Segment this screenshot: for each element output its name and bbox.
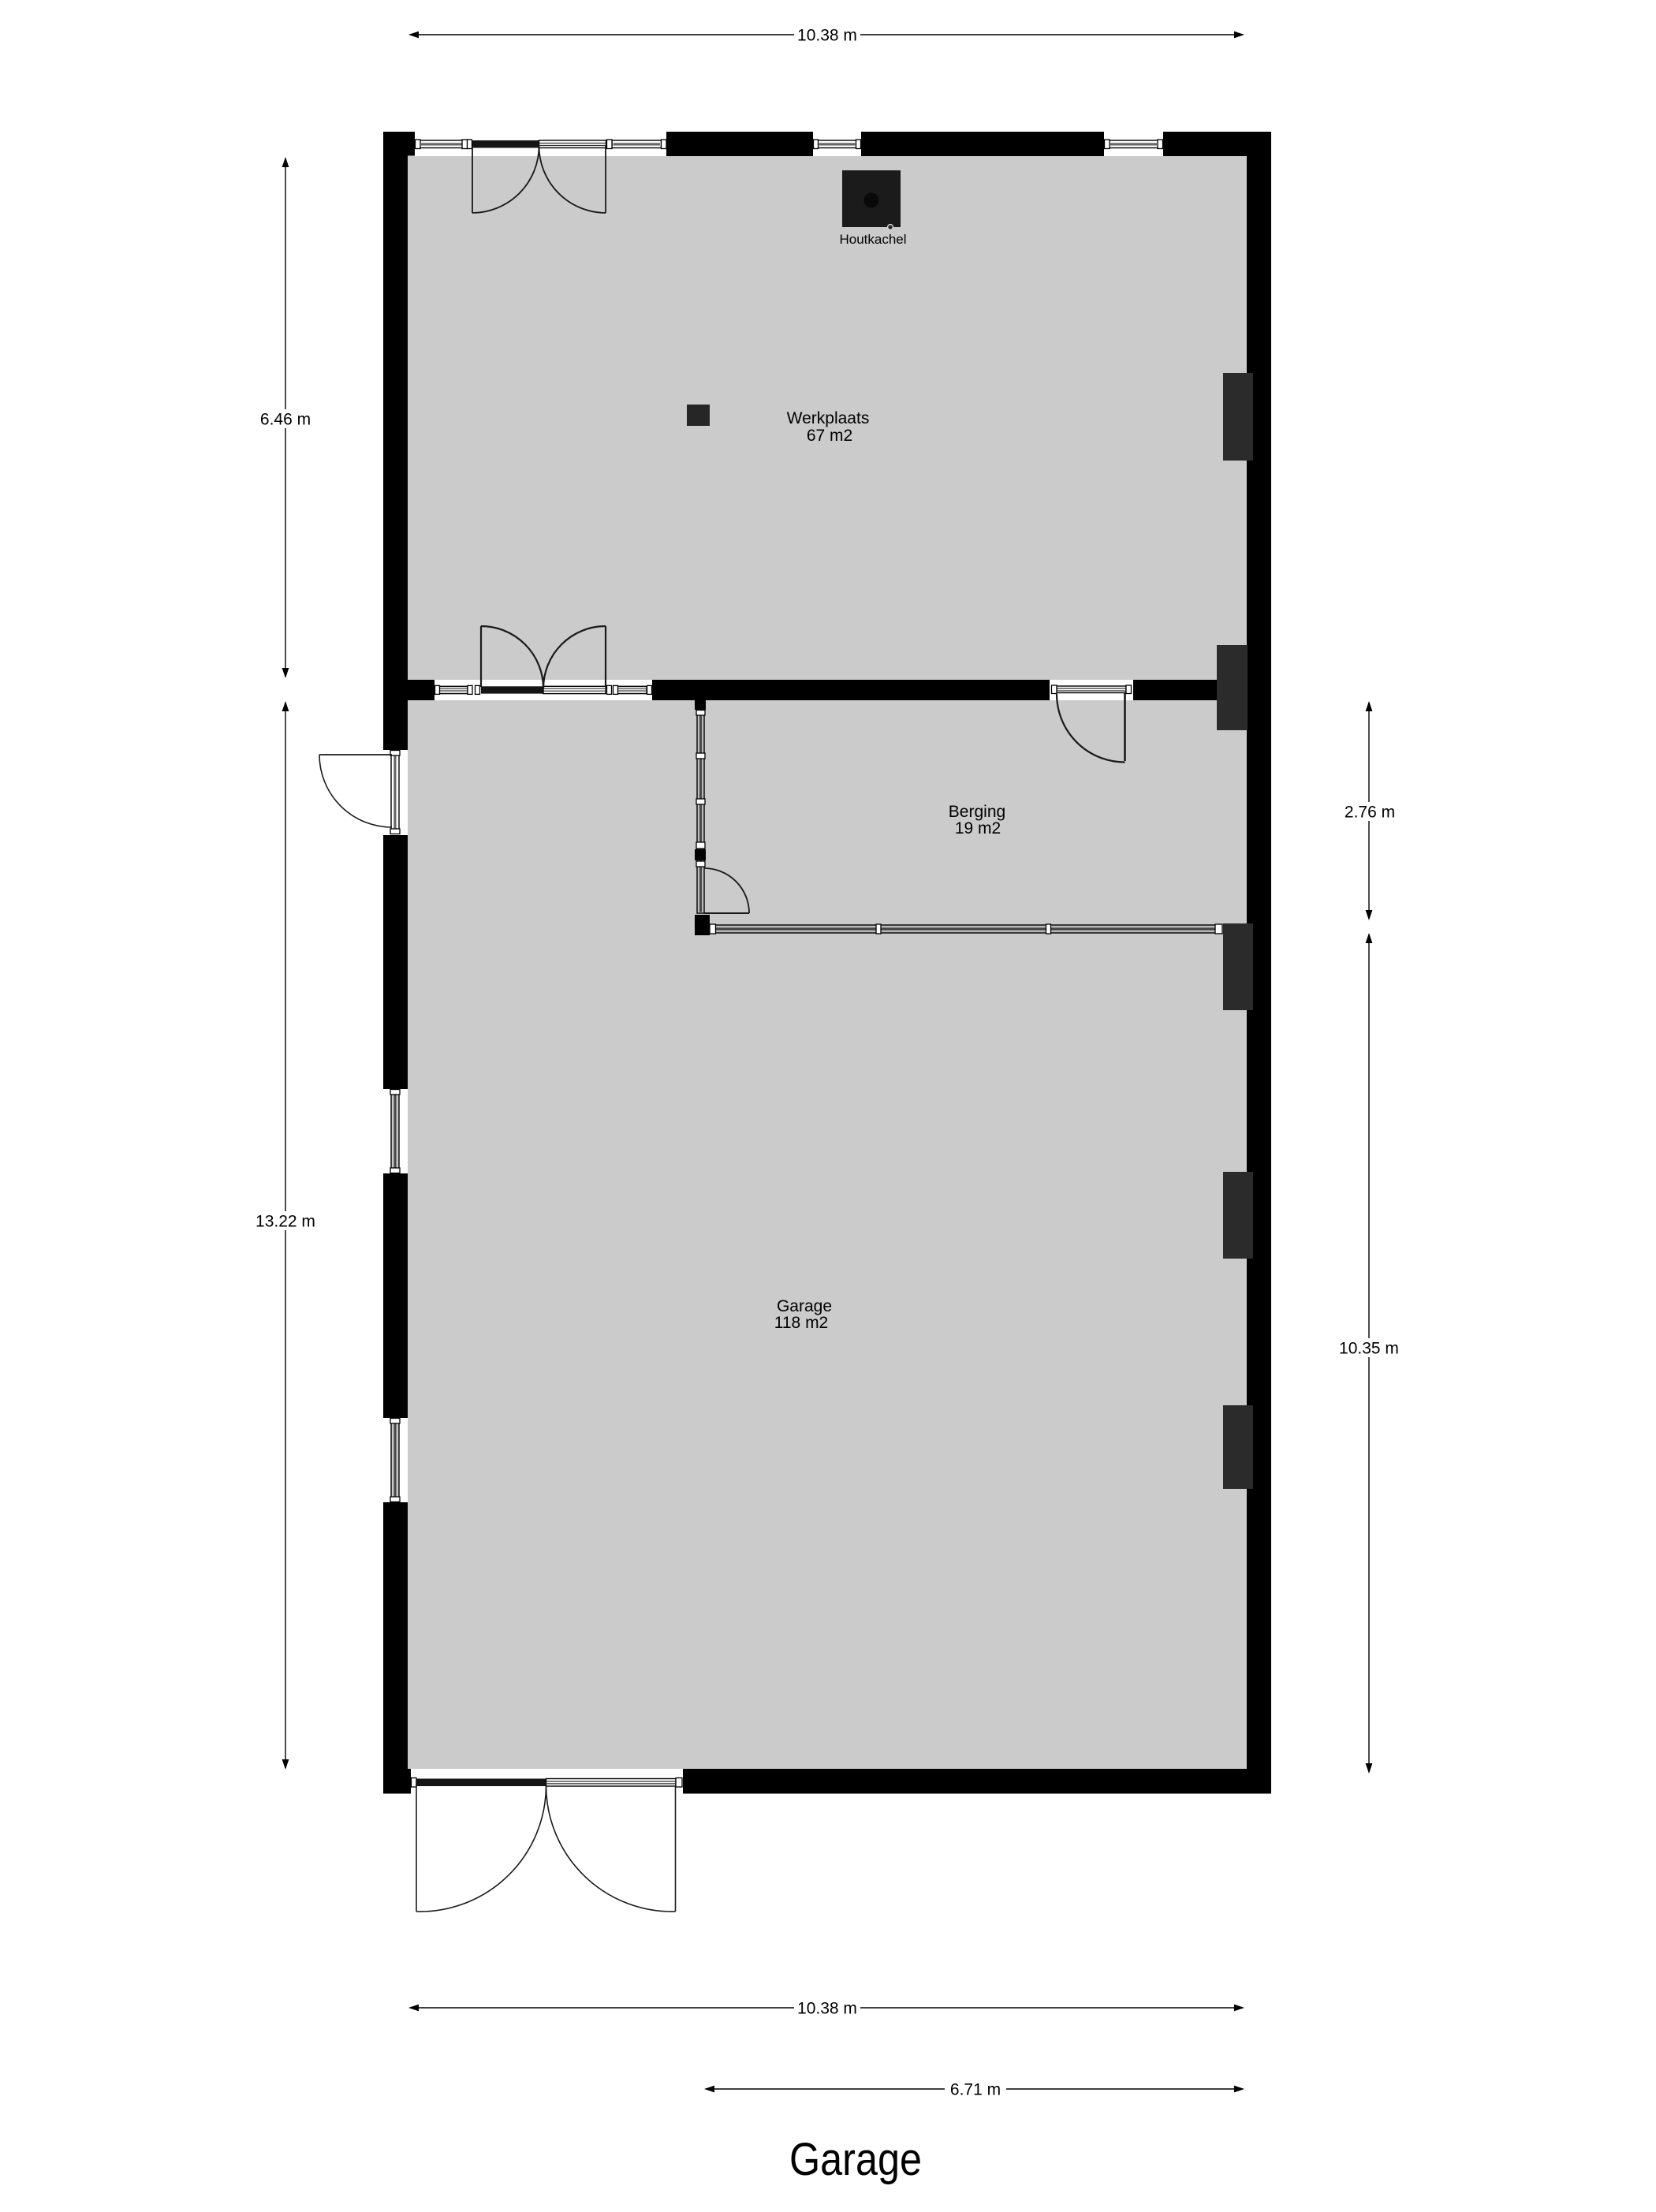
svg-text:Houtkachel: Houtkachel xyxy=(839,232,906,247)
svg-text:Garage: Garage xyxy=(777,1297,832,1315)
svg-text:19 m2: 19 m2 xyxy=(955,819,1001,837)
svg-text:Berging: Berging xyxy=(949,803,1005,821)
svg-text:118 m2: 118 m2 xyxy=(774,1314,829,1332)
svg-text:6.71 m: 6.71 m xyxy=(950,2081,1001,2099)
svg-text:Garage: Garage xyxy=(789,2134,922,2185)
svg-text:10.38 m: 10.38 m xyxy=(797,2000,857,2018)
svg-text:10.35 m: 10.35 m xyxy=(1339,1340,1399,1358)
svg-text:6.46 m: 6.46 m xyxy=(260,411,311,429)
svg-text:Werkplaats: Werkplaats xyxy=(787,409,870,427)
svg-text:67 m2: 67 m2 xyxy=(807,427,852,445)
svg-text:13.22 m: 13.22 m xyxy=(255,1213,315,1231)
svg-text:2.76 m: 2.76 m xyxy=(1345,804,1395,822)
svg-text:10.38 m: 10.38 m xyxy=(797,27,857,45)
